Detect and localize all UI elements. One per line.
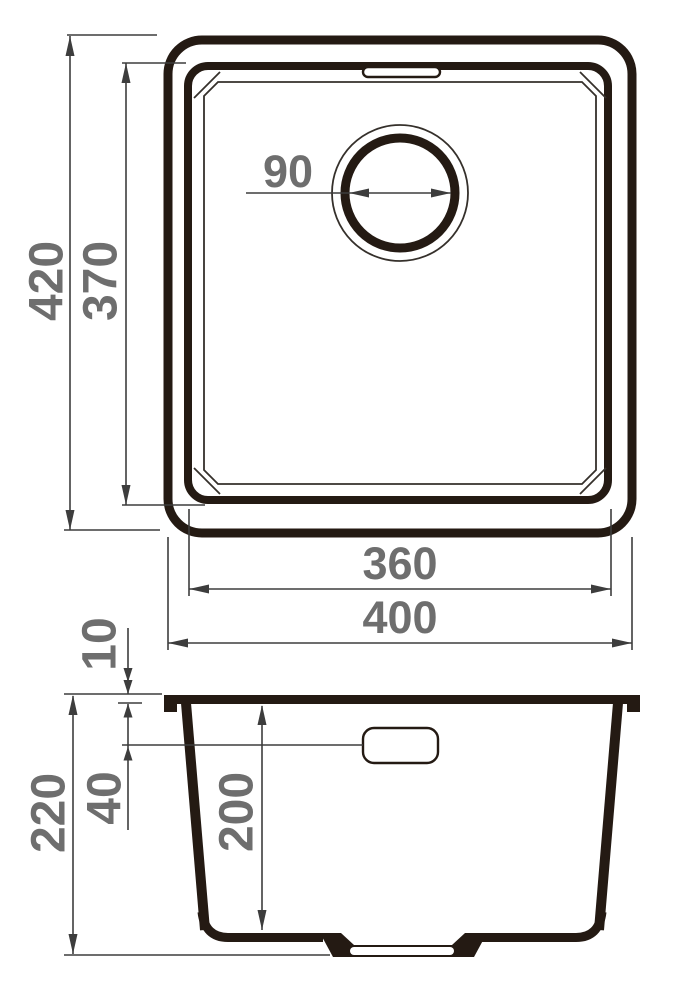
drain-recess-notch bbox=[341, 933, 465, 945]
arrow-up-icon bbox=[122, 63, 131, 83]
overflow-slot-side bbox=[363, 728, 438, 763]
dim-overflow-offset-label: 40 bbox=[79, 771, 132, 824]
arrow-down-icon bbox=[69, 934, 78, 954]
dimension-bowl-depth-200: 200 bbox=[211, 705, 267, 930]
dimension-overall-depth-220: 220 bbox=[23, 695, 331, 955]
arrow-up-icon bbox=[66, 36, 75, 56]
arrow-up-icon bbox=[258, 705, 267, 725]
dim-rim-thickness-label: 10 bbox=[74, 617, 127, 670]
side-rim bbox=[164, 695, 640, 704]
arrow-right-icon bbox=[591, 585, 611, 594]
arrow-down-icon bbox=[122, 485, 131, 505]
arrow-up-icon bbox=[124, 747, 133, 761]
dim-bowl-depth-label: 200 bbox=[211, 772, 264, 852]
arrow-down-icon bbox=[66, 510, 75, 530]
dim-drain-diameter-label: 90 bbox=[263, 146, 313, 197]
dim-overall-depth-label: 220 bbox=[23, 773, 76, 853]
side-bottom-right bbox=[481, 912, 602, 938]
sink-drawing: 420 370 90 360 400 bbox=[0, 0, 680, 1000]
arrow-up-icon bbox=[69, 695, 78, 715]
sink-outer-rim bbox=[168, 40, 632, 533]
drawing-svg: 420 370 90 360 400 bbox=[0, 0, 680, 1000]
overflow-slot-top bbox=[363, 67, 440, 77]
dim-overall-height-label: 420 bbox=[21, 241, 74, 321]
dim-bowl-height-label: 370 bbox=[75, 241, 128, 321]
dim-bowl-width-label: 360 bbox=[362, 538, 437, 589]
arrow-left-icon bbox=[189, 585, 209, 594]
arrow-right-icon bbox=[612, 639, 632, 648]
side-rim-right-lip bbox=[627, 702, 640, 712]
top-view bbox=[168, 40, 632, 533]
dimension-rim-thickness-10: 10 bbox=[64, 617, 162, 717]
arrow-left-icon bbox=[168, 639, 188, 648]
dim-overall-width-label: 400 bbox=[362, 592, 437, 643]
side-wall-right bbox=[599, 703, 618, 930]
drain-flange-slot bbox=[350, 947, 454, 955]
arrow-down-icon bbox=[258, 910, 267, 930]
side-rim-left-lip bbox=[164, 702, 177, 712]
side-wall-left bbox=[186, 703, 205, 930]
arrow-down-icon bbox=[124, 680, 133, 694]
